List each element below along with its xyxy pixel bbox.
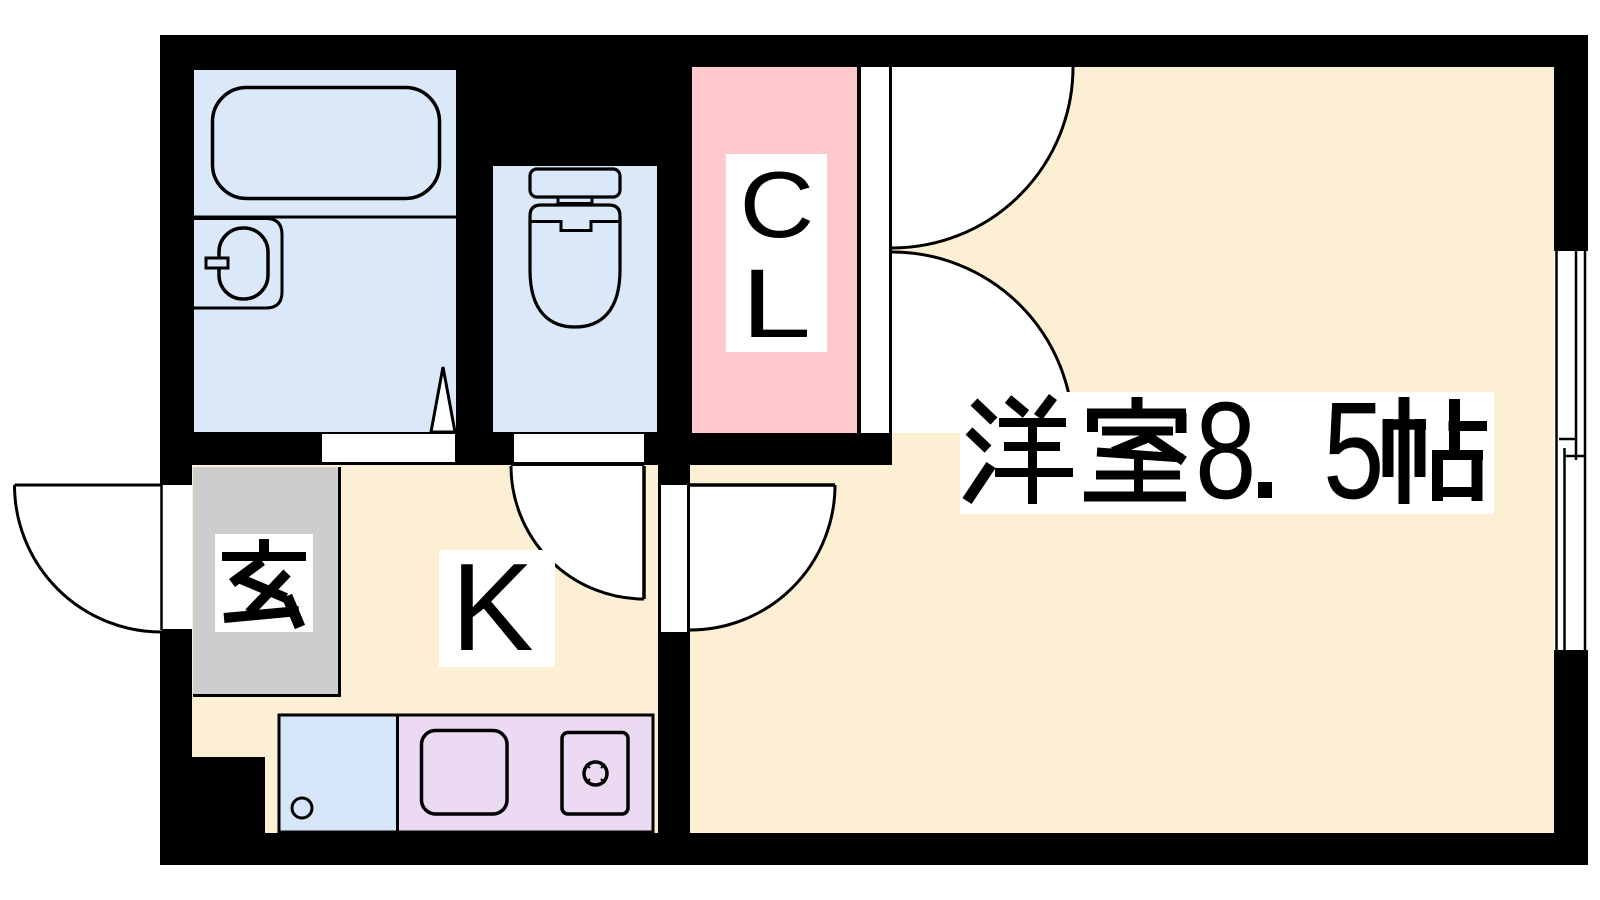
svg-text:8: 8: [1195, 374, 1256, 527]
svg-text:L: L: [741, 249, 811, 358]
svg-text:5: 5: [1323, 374, 1384, 527]
svg-text:K: K: [451, 539, 534, 677]
svg-text:C: C: [740, 152, 815, 257]
